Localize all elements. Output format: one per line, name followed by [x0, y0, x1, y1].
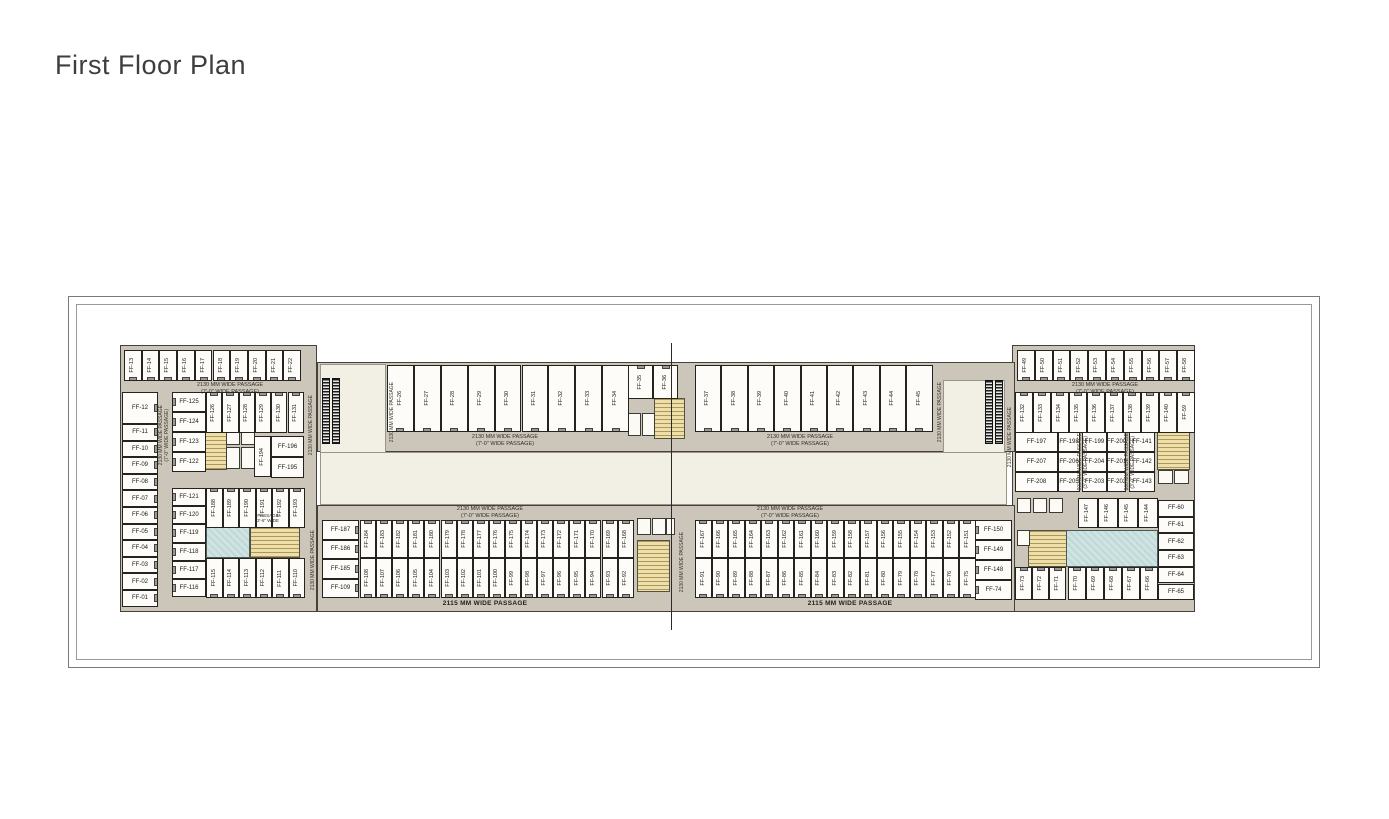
unit-ff-107: FF-107 — [376, 558, 392, 598]
esc-area — [322, 378, 330, 444]
unit-ff-49: FF-49 — [1017, 350, 1035, 381]
unit-ff-126: FF-126 — [206, 392, 222, 433]
unit-ff-123: FF-123 — [172, 432, 206, 452]
unit-ff-103: FF-103 — [441, 558, 457, 598]
unit-ff-53: FF-53 — [1088, 350, 1106, 381]
room-area — [1174, 470, 1189, 484]
unit-ff-95: FF-95 — [569, 558, 585, 598]
unit-ff-120: FF-120 — [172, 506, 206, 524]
room-area — [652, 518, 666, 535]
unit-ff-148: FF-148 — [975, 560, 1012, 580]
unit-ff-32: FF-32 — [548, 365, 575, 432]
unit-ff-159: FF-159 — [827, 520, 844, 558]
unit-ff-98: FF-98 — [521, 558, 537, 598]
unit-ff-111: FF-111 — [272, 558, 289, 598]
unit-ff-42: FF-42 — [827, 365, 853, 432]
unit-ff-168: FF-168 — [618, 520, 634, 558]
unit-ff-208: FF-208 — [1015, 472, 1058, 492]
unit-ff-171: FF-171 — [569, 520, 585, 558]
unit-ff-138: FF-138 — [1123, 392, 1141, 433]
unit-ff-80: FF-80 — [877, 558, 894, 598]
stair-area — [1028, 530, 1069, 567]
unit-ff-74: FF-74 — [975, 580, 1012, 600]
unit-ff-164: FF-164 — [745, 520, 762, 558]
unit-ff-129: FF-129 — [255, 392, 271, 433]
passage-label: 2130 MM WIDE PASSAGE — [306, 520, 320, 600]
unit-ff-85: FF-85 — [794, 558, 811, 598]
room-area — [637, 518, 651, 535]
unit-ff-90: FF-90 — [712, 558, 729, 598]
unit-ff-09: FF-09 — [122, 457, 158, 474]
unit-ff-84: FF-84 — [811, 558, 828, 598]
esc-area — [985, 380, 993, 444]
room-area — [628, 413, 641, 436]
unit-ff-130: FF-130 — [271, 392, 287, 433]
unit-ff-96: FF-96 — [553, 558, 569, 598]
unit-ff-55: FF-55 — [1124, 350, 1142, 381]
unit-ff-45: FF-45 — [906, 365, 932, 432]
unit-ff-194: FF-194 — [254, 436, 271, 477]
unit-ff-06: FF-06 — [122, 507, 158, 524]
room-area — [1017, 498, 1031, 513]
unit-ff-152: FF-152 — [943, 520, 960, 558]
passage-label: 2130 MM WIDE PASSAGE(7'-0" WIDE PASSAGE) — [457, 506, 523, 519]
unit-ff-102: FF-102 — [457, 558, 473, 598]
stair-area — [250, 527, 300, 558]
unit-ff-34: FF-34 — [602, 365, 629, 432]
esc-area — [332, 378, 340, 444]
unit-ff-193: FF-193 — [289, 488, 306, 528]
unit-ff-19: FF-19 — [230, 350, 248, 381]
unit-ff-100: FF-100 — [489, 558, 505, 598]
unit-ff-132: FF-132 — [1015, 392, 1033, 433]
unit-ff-60: FF-60 — [1158, 500, 1194, 517]
unit-ff-112: FF-112 — [256, 558, 273, 598]
unit-ff-181: FF-181 — [408, 520, 424, 558]
unit-ff-18: FF-18 — [213, 350, 231, 381]
room-area — [1049, 498, 1063, 513]
unit-ff-20: FF-20 — [248, 350, 266, 381]
unit-ff-127: FF-127 — [222, 392, 238, 433]
unit-ff-67: FF-67 — [1122, 567, 1140, 600]
unit-ff-131: FF-131 — [288, 392, 304, 433]
unit-ff-83: FF-83 — [827, 558, 844, 598]
unit-ff-163: FF-163 — [761, 520, 778, 558]
unit-ff-180: FF-180 — [424, 520, 440, 558]
unit-ff-31: FF-31 — [522, 365, 549, 432]
passage-label: 2130 MM WIDE PASSAGE(7'-0" WIDE PASSAGE) — [157, 392, 171, 478]
unit-ff-110: FF-110 — [289, 558, 306, 598]
unit-ff-172: FF-172 — [553, 520, 569, 558]
unit-ff-166: FF-166 — [712, 520, 729, 558]
unit-ff-35: FF-35 — [628, 365, 653, 399]
unit-ff-113: FF-113 — [239, 558, 256, 598]
unit-ff-160: FF-160 — [811, 520, 828, 558]
floor-plan: FF-13FF-14FF-15FF-16FF-17FF-18FF-19FF-20… — [0, 0, 1389, 819]
unit-ff-116: FF-116 — [172, 579, 206, 597]
unit-ff-161: FF-161 — [794, 520, 811, 558]
room-area — [1017, 530, 1030, 546]
unit-ff-30: FF-30 — [495, 365, 522, 432]
unit-ff-170: FF-170 — [585, 520, 601, 558]
unit-ff-156: FF-156 — [877, 520, 894, 558]
unit-ff-27: FF-27 — [414, 365, 441, 432]
unit-ff-41: FF-41 — [801, 365, 827, 432]
section-line — [671, 343, 672, 630]
room-area — [226, 447, 240, 469]
passage-label: 2130 MM WIDE PASSAGE — [385, 375, 399, 450]
unit-ff-150: FF-150 — [975, 520, 1012, 540]
unit-ff-33: FF-33 — [575, 365, 602, 432]
unit-ff-137: FF-137 — [1105, 392, 1123, 433]
unit-ff-13: FF-13 — [124, 350, 142, 381]
passage-label: 2130 MM WIDE PASSAGE(7'-0" WIDE PASSAGE) — [197, 382, 263, 395]
unit-ff-57: FF-57 — [1159, 350, 1177, 381]
plan-area — [320, 452, 1007, 505]
unit-ff-72: FF-72 — [1032, 567, 1049, 600]
unit-ff-44: FF-44 — [880, 365, 906, 432]
unit-ff-82: FF-82 — [844, 558, 861, 598]
unit-ff-92: FF-92 — [618, 558, 634, 598]
unit-ff-05: FF-05 — [122, 524, 158, 541]
unit-ff-89: FF-89 — [728, 558, 745, 598]
room-area — [241, 447, 255, 469]
passage-label: 2130 MM WIDE PASSAGE — [933, 375, 947, 450]
unit-ff-196: FF-196 — [271, 436, 304, 457]
unit-ff-128: FF-128 — [239, 392, 255, 433]
unit-ff-62: FF-62 — [1158, 533, 1194, 550]
toilet-area — [1066, 530, 1158, 567]
unit-ff-167: FF-167 — [695, 520, 712, 558]
unit-ff-02: FF-02 — [122, 573, 158, 590]
unit-ff-118: FF-118 — [172, 543, 206, 561]
unit-ff-43: FF-43 — [853, 365, 879, 432]
unit-ff-59: FF-59 — [1177, 392, 1195, 433]
unit-ff-16: FF-16 — [177, 350, 195, 381]
passage-label: 2130 MM WIDE PASSAGE(7'-0" WIDE PASSAGE) — [767, 434, 833, 447]
unit-ff-136: FF-136 — [1087, 392, 1105, 433]
unit-ff-12: FF-12 — [122, 392, 158, 424]
unit-ff-104: FF-104 — [424, 558, 440, 598]
unit-ff-75: FF-75 — [959, 558, 976, 598]
passage-label: 900 MM WIDE PASSAGE(3'-0" WIDE PASSAGE) — [1076, 432, 1090, 492]
unit-ff-78: FF-78 — [910, 558, 927, 598]
unit-ff-158: FF-158 — [844, 520, 861, 558]
unit-ff-11: FF-11 — [122, 424, 158, 441]
unit-ff-50: FF-50 — [1035, 350, 1053, 381]
unit-ff-66: FF-66 — [1140, 567, 1158, 600]
stair-area — [637, 540, 670, 592]
unit-ff-122: FF-122 — [172, 452, 206, 472]
unit-ff-114: FF-114 — [223, 558, 240, 598]
unit-ff-149: FF-149 — [975, 540, 1012, 560]
unit-ff-01: FF-01 — [122, 590, 158, 607]
unit-ff-87: FF-87 — [761, 558, 778, 598]
unit-ff-70: FF-70 — [1068, 567, 1086, 600]
unit-ff-36: FF-36 — [653, 365, 678, 399]
unit-ff-146: FF-146 — [1098, 498, 1118, 528]
unit-ff-169: FF-169 — [602, 520, 618, 558]
unit-ff-176: FF-176 — [489, 520, 505, 558]
unit-ff-155: FF-155 — [893, 520, 910, 558]
unit-ff-91: FF-91 — [695, 558, 712, 598]
unit-ff-139: FF-139 — [1141, 392, 1159, 433]
unit-ff-81: FF-81 — [860, 558, 877, 598]
unit-ff-185: FF-185 — [322, 559, 359, 579]
passage-label: 900 MM WIDE PASSAGE(3'-0" WIDE PASSAGE) — [1123, 432, 1137, 492]
unit-ff-40: FF-40 — [774, 365, 800, 432]
room-area — [642, 413, 655, 436]
unit-ff-147: FF-147 — [1078, 498, 1098, 528]
unit-ff-108: FF-108 — [360, 558, 376, 598]
unit-ff-28: FF-28 — [441, 365, 468, 432]
unit-ff-173: FF-173 — [537, 520, 553, 558]
unit-ff-14: FF-14 — [142, 350, 160, 381]
unit-ff-88: FF-88 — [745, 558, 762, 598]
unit-ff-117: FF-117 — [172, 561, 206, 579]
unit-ff-145: FF-145 — [1118, 498, 1138, 528]
unit-ff-17: FF-17 — [195, 350, 213, 381]
unit-ff-177: FF-177 — [473, 520, 489, 558]
unit-ff-183: FF-183 — [376, 520, 392, 558]
unit-ff-76: FF-76 — [943, 558, 960, 598]
esc-area — [995, 380, 1003, 444]
unit-ff-154: FF-154 — [910, 520, 927, 558]
unit-ff-187: FF-187 — [322, 520, 359, 540]
unit-ff-162: FF-162 — [778, 520, 795, 558]
unit-ff-22: FF-22 — [283, 350, 301, 381]
unit-ff-07: FF-07 — [122, 490, 158, 507]
unit-ff-165: FF-165 — [728, 520, 745, 558]
passage-label: 2130 MM WIDE PASSAGE(7'-0" WIDE PASSAGE) — [757, 506, 823, 519]
passage-label: 2130 MM WIDE PASSAGE — [1003, 395, 1017, 480]
unit-ff-04: FF-04 — [122, 540, 158, 557]
toilet-area — [206, 527, 250, 558]
unit-ff-195: FF-195 — [271, 457, 304, 478]
unit-ff-184: FF-184 — [360, 520, 376, 558]
passage-label: 2130 MM WIDE PASSAGE — [675, 528, 689, 596]
unit-ff-39: FF-39 — [748, 365, 774, 432]
unit-ff-79: FF-79 — [893, 558, 910, 598]
unit-ff-03: FF-03 — [122, 557, 158, 574]
passage-label: 2115 MM WIDE PASSAGE — [808, 600, 893, 608]
unit-ff-179: FF-179 — [441, 520, 457, 558]
unit-ff-08: FF-08 — [122, 474, 158, 491]
unit-ff-207: FF-207 — [1015, 452, 1058, 472]
unit-ff-106: FF-106 — [392, 558, 408, 598]
unit-ff-21: FF-21 — [266, 350, 284, 381]
unit-ff-64: FF-64 — [1158, 567, 1194, 584]
unit-ff-93: FF-93 — [602, 558, 618, 598]
unit-ff-101: FF-101 — [473, 558, 489, 598]
unit-ff-71: FF-71 — [1049, 567, 1066, 600]
unit-ff-15: FF-15 — [159, 350, 177, 381]
unit-ff-190: FF-190 — [239, 488, 256, 528]
unit-ff-37: FF-37 — [695, 365, 721, 432]
unit-ff-134: FF-134 — [1051, 392, 1069, 433]
unit-ff-97: FF-97 — [537, 558, 553, 598]
unit-ff-151: FF-151 — [959, 520, 976, 558]
room-area — [1158, 470, 1173, 484]
unit-ff-29: FF-29 — [468, 365, 495, 432]
unit-ff-175: FF-175 — [505, 520, 521, 558]
unit-ff-109: FF-109 — [322, 579, 359, 599]
unit-ff-188: FF-188 — [206, 488, 223, 528]
unit-ff-56: FF-56 — [1142, 350, 1160, 381]
unit-ff-105: FF-105 — [408, 558, 424, 598]
unit-ff-157: FF-157 — [860, 520, 877, 558]
unit-ff-178: FF-178 — [457, 520, 473, 558]
unit-ff-115: FF-115 — [206, 558, 223, 598]
unit-ff-68: FF-68 — [1104, 567, 1122, 600]
unit-ff-63: FF-63 — [1158, 550, 1194, 567]
unit-ff-86: FF-86 — [778, 558, 795, 598]
unit-ff-197: FF-197 — [1015, 432, 1058, 452]
unit-ff-133: FF-133 — [1033, 392, 1051, 433]
unit-ff-52: FF-52 — [1070, 350, 1088, 381]
floor-plan-page: First Floor Plan FF-13FF-14FF-15FF-16FF-… — [0, 0, 1389, 819]
unit-ff-61: FF-61 — [1158, 517, 1194, 534]
room-area — [1033, 498, 1047, 513]
unit-ff-135: FF-135 — [1069, 392, 1087, 433]
unit-ff-186: FF-186 — [322, 540, 359, 560]
unit-ff-140: FF-140 — [1159, 392, 1177, 433]
unit-ff-182: FF-182 — [392, 520, 408, 558]
unit-ff-54: FF-54 — [1106, 350, 1124, 381]
unit-ff-124: FF-124 — [172, 412, 206, 432]
unit-ff-189: FF-189 — [223, 488, 240, 528]
unit-ff-65: FF-65 — [1158, 584, 1194, 601]
unit-ff-73: FF-73 — [1015, 567, 1032, 600]
unit-ff-69: FF-69 — [1086, 567, 1104, 600]
unit-ff-144: FF-144 — [1138, 498, 1158, 528]
unit-ff-94: FF-94 — [585, 558, 601, 598]
unit-ff-51: FF-51 — [1053, 350, 1071, 381]
passage-label: 2130 MM WIDE PASSAGE — [304, 380, 318, 470]
unit-ff-119: FF-119 — [172, 524, 206, 542]
passage-label: 2115 MM WIDE PASSAGE — [443, 600, 528, 608]
passage-label: PASSAGE3'-6" WIDE — [257, 513, 279, 524]
unit-ff-153: FF-153 — [926, 520, 943, 558]
passage-label: 2130 MM WIDE PASSAGE(7'-0" WIDE PASSAGE) — [472, 434, 538, 447]
unit-ff-77: FF-77 — [926, 558, 943, 598]
unit-ff-10: FF-10 — [122, 441, 158, 458]
unit-ff-99: FF-99 — [505, 558, 521, 598]
stair-area — [654, 398, 685, 439]
unit-ff-121: FF-121 — [172, 488, 206, 506]
unit-ff-38: FF-38 — [721, 365, 747, 432]
unit-ff-58: FF-58 — [1177, 350, 1195, 381]
passage-label: 2130 MM WIDE PASSAGE(7'-0" WIDE PASSAGE) — [1072, 382, 1138, 395]
unit-ff-174: FF-174 — [521, 520, 537, 558]
